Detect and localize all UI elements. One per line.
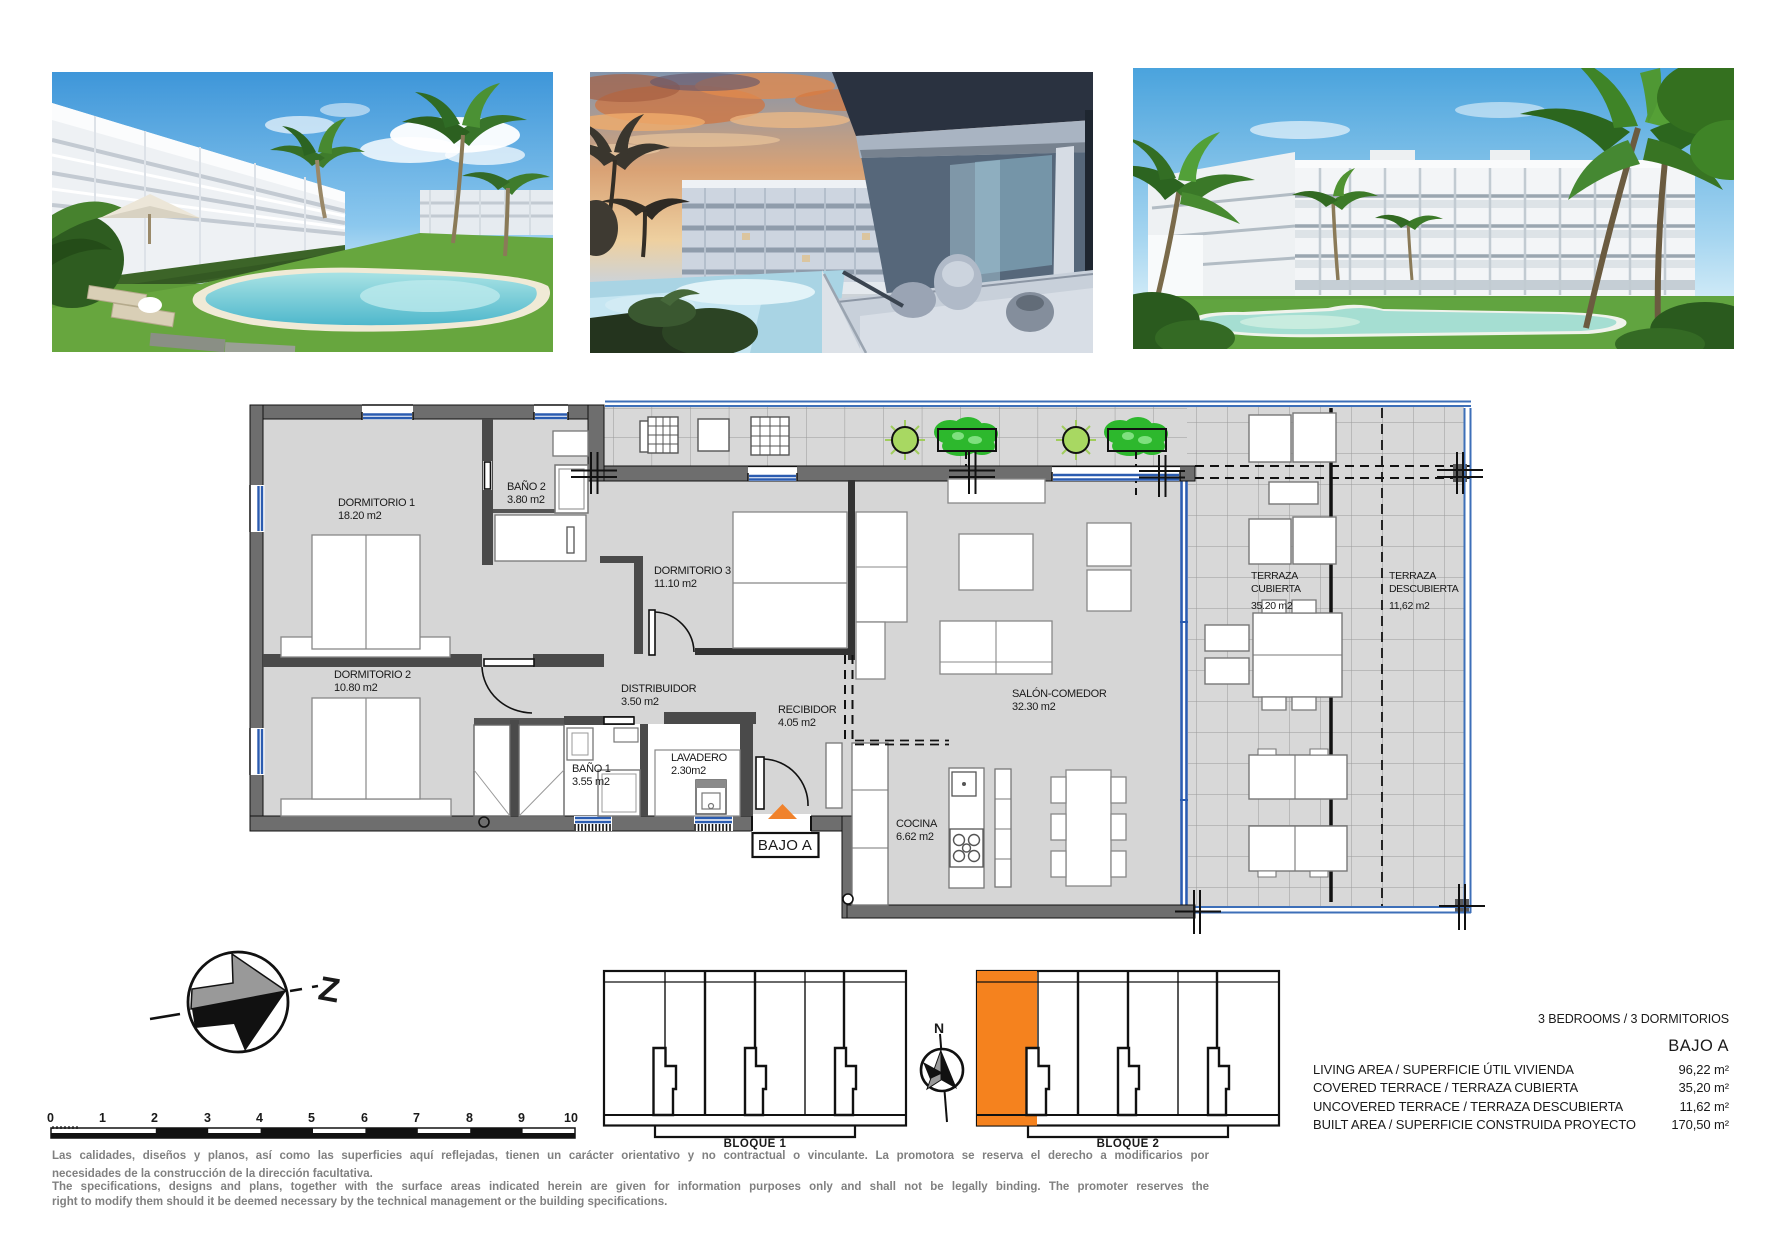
svg-text:170,50 m²: 170,50 m² xyxy=(1671,1117,1729,1132)
svg-text:BAJO A: BAJO A xyxy=(1668,1037,1729,1055)
svg-text:BAJO A: BAJO A xyxy=(758,837,812,854)
svg-text:9: 9 xyxy=(518,1111,525,1125)
svg-text:TERRAZA: TERRAZA xyxy=(1251,570,1298,582)
svg-text:7: 7 xyxy=(413,1111,420,1125)
svg-text:BAÑO 2: BAÑO 2 xyxy=(507,480,546,493)
svg-text:DESCUBIERTA: DESCUBIERTA xyxy=(1389,583,1459,595)
svg-text:BAÑO 1: BAÑO 1 xyxy=(572,762,611,775)
svg-text:1: 1 xyxy=(99,1111,106,1125)
svg-text:CUBIERTA: CUBIERTA xyxy=(1251,583,1301,595)
svg-text:11.10 m2: 11.10 m2 xyxy=(654,578,697,590)
svg-text:RECIBIDOR: RECIBIDOR xyxy=(778,704,837,716)
svg-text:10.80 m2: 10.80 m2 xyxy=(334,682,378,694)
svg-text:LIVING AREA / SUPERFICIE ÚTIL: LIVING AREA / SUPERFICIE ÚTIL VIVIENDA xyxy=(1313,1062,1574,1077)
svg-text:Z: Z xyxy=(316,969,343,1010)
svg-text:COVERED TERRACE / TERRAZA CUBI: COVERED TERRACE / TERRAZA CUBIERTA xyxy=(1313,1080,1579,1095)
svg-text:BUILT AREA / SUPERFICIE CONSTR: BUILT AREA / SUPERFICIE CONSTRUIDA PROYE… xyxy=(1313,1117,1636,1132)
svg-text:3.80 m2: 3.80 m2 xyxy=(507,494,545,506)
svg-text:3.55 m2: 3.55 m2 xyxy=(572,776,610,788)
svg-text:SALÓN-COMEDOR: SALÓN-COMEDOR xyxy=(1012,687,1107,700)
svg-text:LAVADERO: LAVADERO xyxy=(671,752,728,764)
svg-text:4.05 m2: 4.05 m2 xyxy=(778,717,816,729)
svg-text:2.30m2: 2.30m2 xyxy=(671,765,706,777)
svg-text:6: 6 xyxy=(361,1111,368,1125)
svg-text:11,62 m²: 11,62 m² xyxy=(1679,1099,1729,1114)
svg-text:6.62 m2: 6.62 m2 xyxy=(896,831,934,843)
svg-text:DORMITORIO 2: DORMITORIO 2 xyxy=(334,669,411,681)
svg-text:2: 2 xyxy=(151,1111,158,1125)
svg-text:3: 3 xyxy=(204,1111,211,1125)
svg-text:DORMITORIO 1: DORMITORIO 1 xyxy=(338,497,415,509)
svg-text:0: 0 xyxy=(47,1111,54,1125)
svg-text:COCINA: COCINA xyxy=(896,818,938,830)
svg-text:10: 10 xyxy=(564,1111,578,1125)
svg-text:8: 8 xyxy=(466,1111,473,1125)
svg-text:TERRAZA: TERRAZA xyxy=(1389,570,1436,582)
svg-text:3.50 m2: 3.50 m2 xyxy=(621,696,659,708)
svg-text:N: N xyxy=(934,1020,944,1036)
svg-text:3 BEDROOMS / 3 DORMITORIOS: 3 BEDROOMS / 3 DORMITORIOS xyxy=(1538,1012,1729,1026)
svg-text:DORMITORIO 3: DORMITORIO 3 xyxy=(654,565,731,577)
svg-text:UNCOVERED TERRACE / TERRAZA DE: UNCOVERED TERRACE / TERRAZA DESCUBIERTA xyxy=(1313,1099,1624,1114)
svg-text:18.20 m2: 18.20 m2 xyxy=(338,510,382,522)
svg-text:11,62 m2: 11,62 m2 xyxy=(1389,600,1430,612)
svg-text:4: 4 xyxy=(256,1111,263,1125)
svg-text:35.20 m2: 35.20 m2 xyxy=(1251,600,1293,612)
svg-text:5: 5 xyxy=(308,1111,315,1125)
svg-text:DISTRIBUIDOR: DISTRIBUIDOR xyxy=(621,683,697,695)
svg-text:35,20 m²: 35,20 m² xyxy=(1678,1080,1729,1095)
svg-text:32.30 m2: 32.30 m2 xyxy=(1012,701,1056,713)
svg-text:96,22 m²: 96,22 m² xyxy=(1678,1062,1729,1077)
